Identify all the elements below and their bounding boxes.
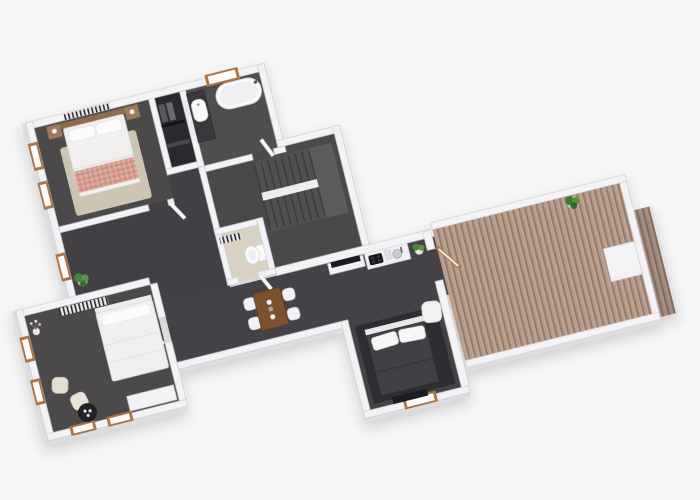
armchair-1: [52, 377, 68, 393]
floorplan-svg: [0, 0, 700, 500]
floorplan-render: [0, 0, 700, 500]
lounge-chair: [421, 300, 442, 323]
